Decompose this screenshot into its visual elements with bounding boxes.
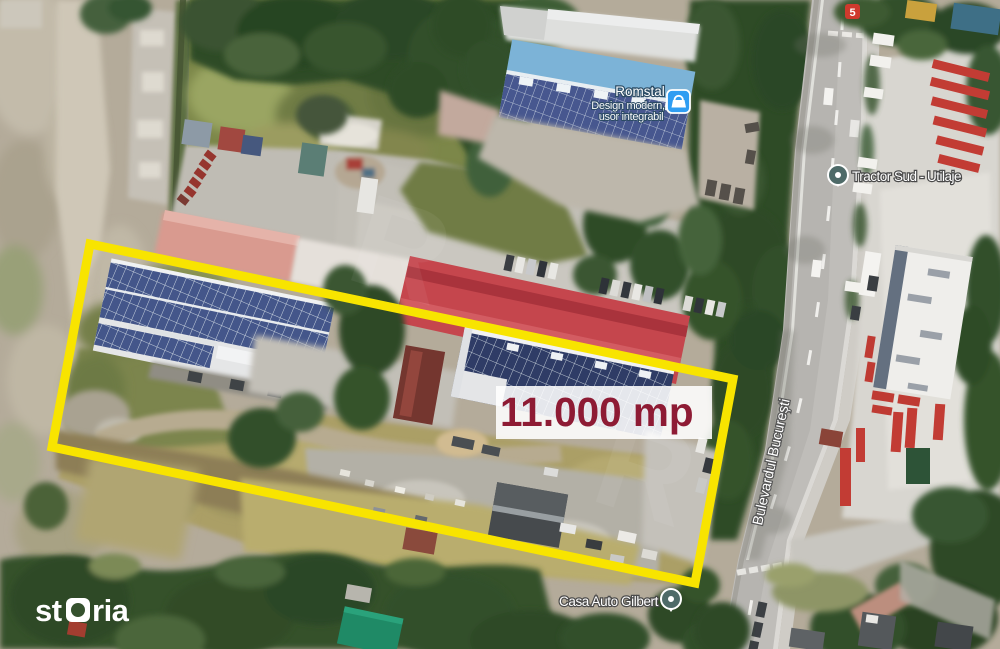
svg-text:st: st [35, 593, 62, 628]
svg-text:5: 5 [849, 7, 855, 19]
svg-text:11.000 mp: 11.000 mp [500, 389, 694, 435]
svg-text:Casa Auto Gilbert: Casa Auto Gilbert [559, 594, 659, 609]
svg-text:ria: ria [92, 593, 130, 628]
svg-text:Tractor Sud - Utilaje: Tractor Sud - Utilaje [852, 169, 961, 184]
svg-text:usor integrabil: usor integrabil [599, 111, 664, 123]
svg-text:Romstal: Romstal [615, 84, 665, 99]
